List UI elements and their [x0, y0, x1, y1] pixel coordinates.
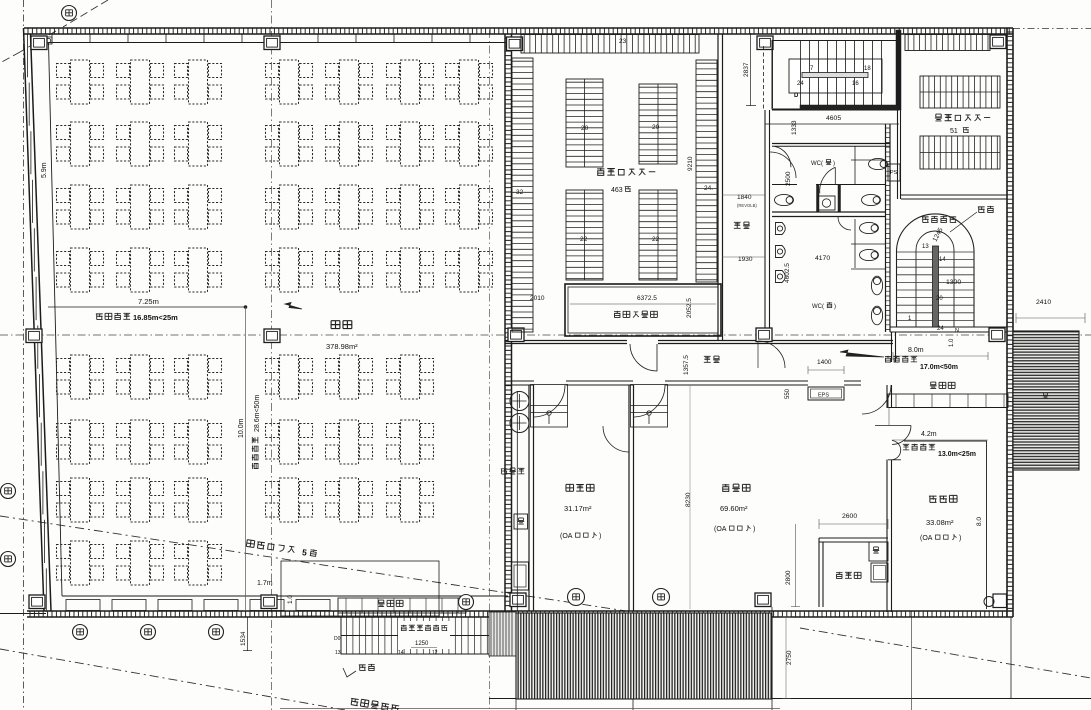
- svg-text:1357.5: 1357.5: [683, 355, 690, 375]
- svg-text:22: 22: [652, 236, 660, 243]
- svg-text:20: 20: [652, 124, 660, 131]
- svg-text:16.85m<25m: 16.85m<25m: [133, 313, 178, 322]
- svg-text:13: 13: [335, 650, 341, 656]
- svg-text:2052.5: 2052.5: [686, 298, 693, 318]
- svg-text:2410: 2410: [1036, 299, 1051, 306]
- svg-text:5.9m: 5.9m: [41, 162, 48, 178]
- svg-text:): ): [834, 304, 836, 310]
- svg-text:24: 24: [937, 326, 944, 332]
- svg-text:): ): [599, 533, 601, 540]
- svg-text:): ): [753, 526, 755, 533]
- svg-text:4602.5: 4602.5: [784, 263, 791, 283]
- svg-text:2800: 2800: [785, 570, 792, 585]
- svg-text:(REVOLB): (REVOLB): [737, 203, 757, 208]
- svg-text:1400: 1400: [817, 359, 832, 366]
- svg-text:7.25m: 7.25m: [138, 297, 159, 306]
- svg-text:4605: 4605: [826, 115, 841, 122]
- svg-text:8.0: 8.0: [976, 517, 983, 526]
- svg-text:WC(: WC(: [812, 304, 824, 310]
- svg-text:1333: 1333: [791, 120, 798, 135]
- svg-text:14: 14: [939, 257, 946, 263]
- svg-text:2750: 2750: [786, 650, 793, 665]
- svg-text:D0: D0: [334, 636, 341, 642]
- svg-text:EPS: EPS: [818, 393, 829, 399]
- svg-text:D: D: [794, 93, 799, 99]
- svg-text:28.6m<50m: 28.6m<50m: [254, 395, 261, 432]
- svg-text:13.0m<25m: 13.0m<25m: [938, 451, 976, 458]
- svg-text:24: 24: [797, 81, 804, 87]
- svg-text:12: 12: [432, 650, 438, 656]
- svg-text:20: 20: [936, 296, 943, 302]
- svg-text:31.17m²: 31.17m²: [564, 504, 592, 513]
- svg-text:16: 16: [852, 81, 859, 87]
- svg-text:32: 32: [516, 189, 524, 196]
- svg-text:13: 13: [922, 244, 929, 250]
- svg-text:2600: 2600: [842, 513, 857, 520]
- svg-text:1.0: 1.0: [949, 338, 955, 347]
- svg-text:9210: 9210: [687, 156, 694, 171]
- svg-text:1250: 1250: [415, 641, 429, 647]
- svg-text:69.60m²: 69.60m²: [720, 504, 748, 513]
- svg-text:1.0: 1.0: [287, 595, 294, 604]
- svg-text:1.7m: 1.7m: [257, 580, 273, 587]
- svg-text:2010: 2010: [530, 295, 545, 302]
- svg-text:2500: 2500: [785, 171, 792, 186]
- svg-text:): ): [833, 161, 835, 167]
- svg-text:4.2m: 4.2m: [921, 431, 937, 438]
- svg-text:8.0m: 8.0m: [908, 347, 924, 354]
- svg-text:4170: 4170: [815, 255, 830, 262]
- svg-text:51: 51: [950, 128, 958, 135]
- svg-text:378.98m²: 378.98m²: [326, 342, 358, 351]
- svg-text:550: 550: [785, 388, 791, 399]
- svg-text:WC(: WC(: [811, 161, 823, 167]
- svg-text:18: 18: [864, 66, 871, 72]
- svg-text:(OA: (OA: [560, 533, 573, 540]
- svg-text:17.0m<50m: 17.0m<50m: [920, 364, 958, 371]
- svg-text:10.0m: 10.0m: [238, 418, 245, 438]
- svg-text:(OA: (OA: [920, 535, 933, 542]
- svg-text:(OA: (OA: [714, 526, 727, 533]
- svg-text:22: 22: [580, 236, 588, 243]
- svg-text:20: 20: [581, 125, 589, 132]
- svg-text:1300: 1300: [946, 279, 961, 286]
- svg-text:6372.5: 6372.5: [637, 295, 657, 302]
- svg-text:PS: PS: [890, 170, 898, 176]
- svg-text:8230: 8230: [685, 492, 692, 507]
- svg-text:24.: 24.: [704, 185, 713, 192]
- svg-text:1534: 1534: [240, 631, 247, 646]
- svg-text:23: 23: [619, 38, 627, 45]
- svg-text:463: 463: [611, 187, 623, 194]
- svg-text:N: N: [955, 328, 959, 334]
- svg-text:14: 14: [398, 650, 404, 656]
- svg-text:): ): [959, 535, 961, 542]
- svg-text:2837: 2837: [743, 62, 750, 77]
- svg-text:33.08m²: 33.08m²: [926, 518, 954, 527]
